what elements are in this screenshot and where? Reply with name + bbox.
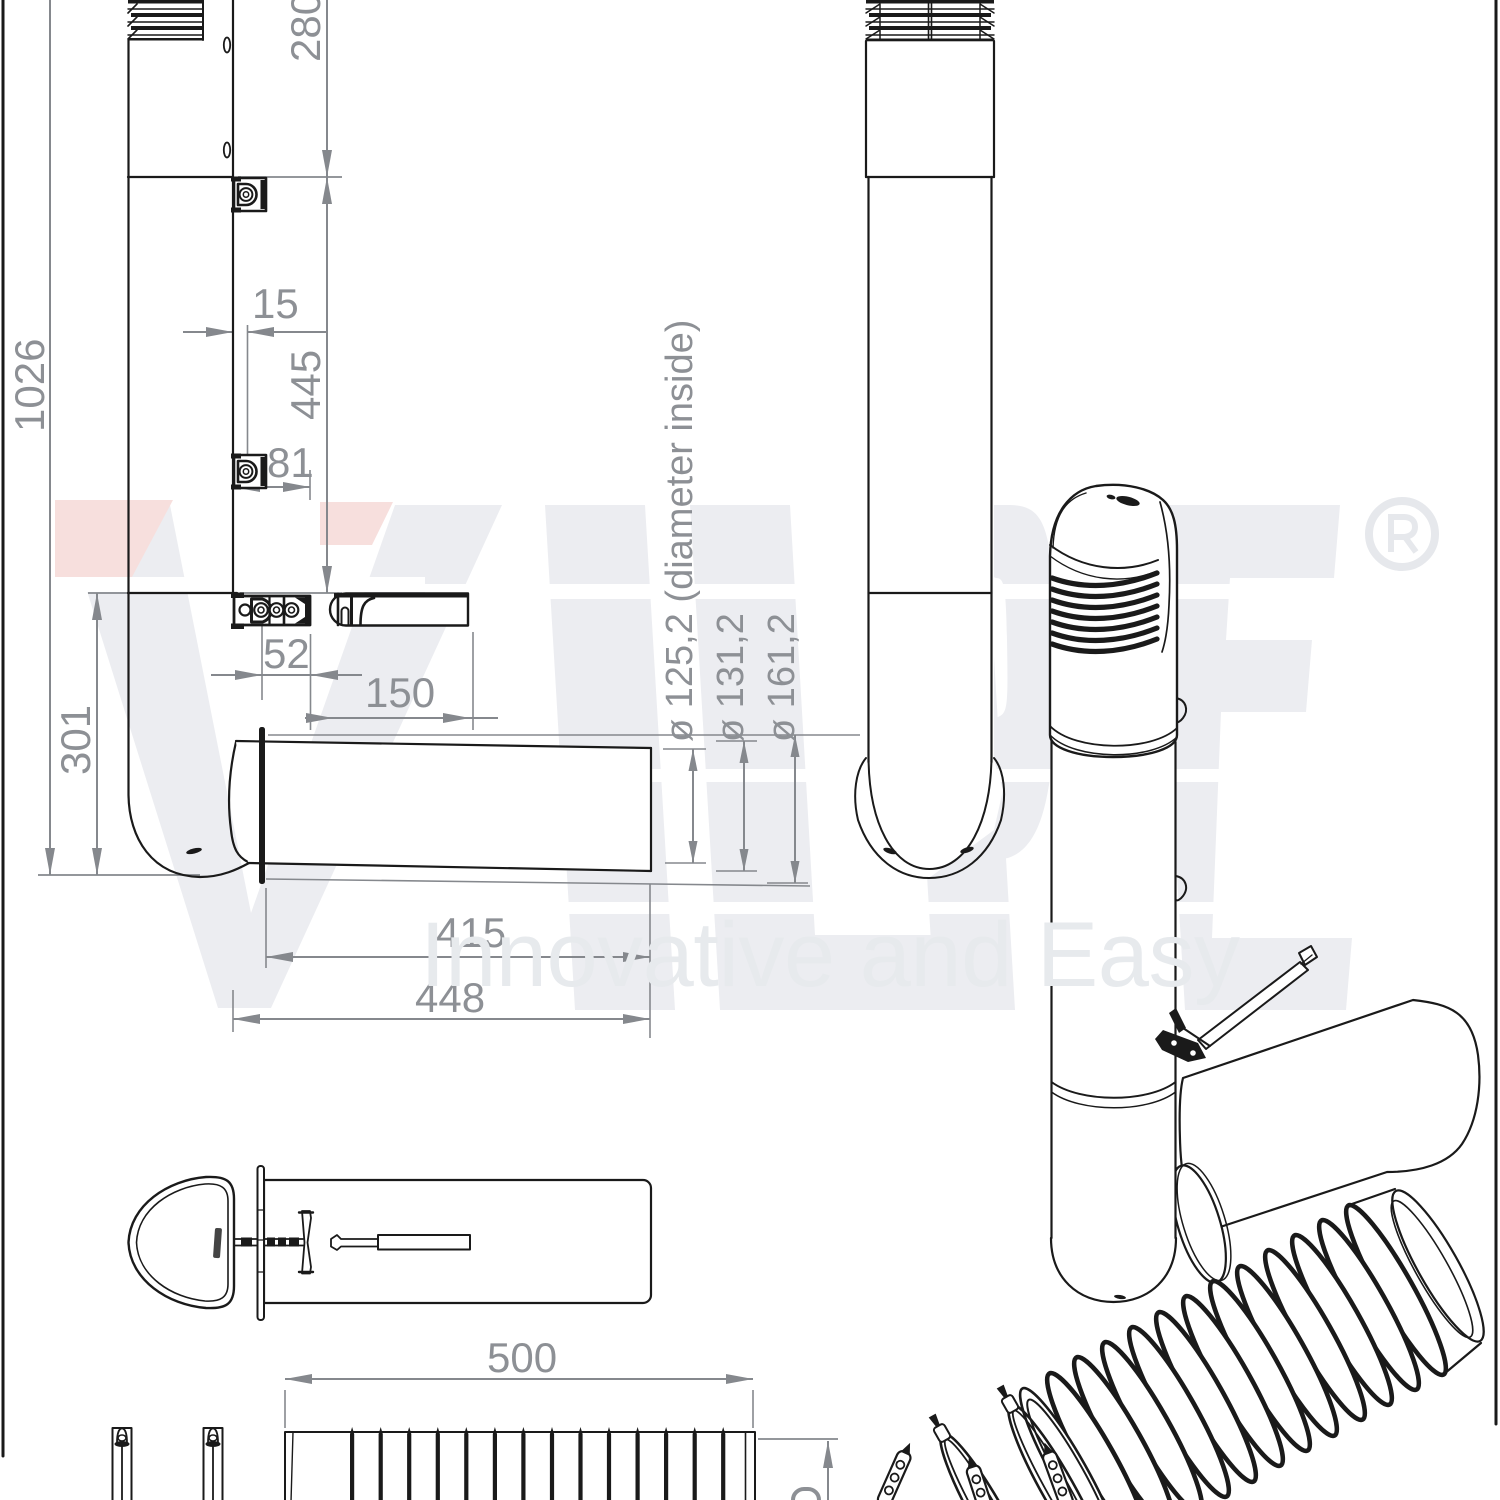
svg-text:500: 500 xyxy=(487,1334,557,1381)
svg-text:1026: 1026 xyxy=(6,339,53,432)
svg-text:ø 131,2: ø 131,2 xyxy=(710,613,752,742)
svg-text:15: 15 xyxy=(252,280,299,327)
svg-text:150: 150 xyxy=(365,669,435,716)
svg-text:81: 81 xyxy=(267,439,314,486)
svg-text:445: 445 xyxy=(282,350,329,420)
svg-text:52: 52 xyxy=(263,630,310,677)
svg-text:ø 161,2: ø 161,2 xyxy=(761,613,803,742)
svg-text:Innovative and Easy: Innovative and Easy xyxy=(420,904,1240,1006)
svg-text:ø 125,2 (diameter inside): ø 125,2 (diameter inside) xyxy=(659,320,701,742)
svg-text:280: 280 xyxy=(282,0,329,62)
svg-text:301: 301 xyxy=(52,705,99,775)
